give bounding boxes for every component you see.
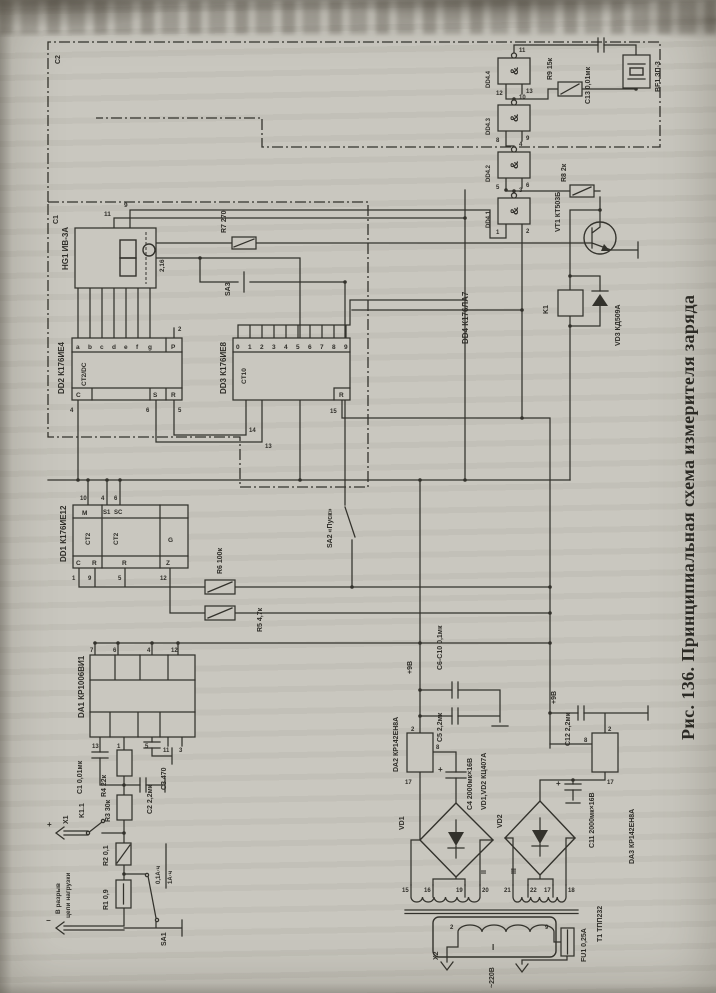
winding-ii-label: II: [481, 870, 488, 874]
dd3-out-4: 4: [284, 344, 288, 351]
junction-dots: [76, 87, 638, 876]
dd1-pin-5: 5: [118, 576, 122, 582]
nand-symbol: &: [509, 67, 521, 75]
da1-pin-6: 6: [113, 648, 117, 654]
dd2-counter: DD2 К176ИЕ4 CT2/DC a b c d e f g P 2 C S…: [57, 327, 182, 414]
dd3-label: DD3 К176ИЕ8: [219, 341, 228, 394]
t1-pin-20: 20: [482, 888, 489, 894]
da1-pin-4: 4: [147, 648, 151, 654]
da1-pin-7: 7: [90, 648, 94, 654]
c1-label: C1 0,01мк: [77, 760, 84, 794]
dd4-1-in1: 1: [496, 230, 500, 236]
nand-symbol: &: [509, 207, 521, 215]
dd3-out-5: 5: [296, 344, 300, 351]
dd4-4-in2: 13: [526, 89, 533, 95]
vd3-label: VD3 КД509А: [615, 304, 622, 346]
dd2-pin-6: 6: [146, 408, 150, 414]
sa2-label: SA2 «Пуск»: [327, 508, 334, 548]
x1-label: X1: [63, 815, 70, 824]
hg1-label: HG1 ИВ-3А: [61, 227, 70, 270]
vd2-bridge-label: VD2: [497, 814, 504, 828]
nand-symbol: &: [509, 161, 521, 169]
dd2-out-b: b: [88, 344, 92, 351]
range-1ah: 1А·ч: [168, 870, 174, 884]
da1-timer: DA1 КР1006ВИ1 7 6 4 12 13 1 5 11 3 C1 0,…: [77, 648, 195, 797]
c11-label: C11 2000мк×16В: [589, 792, 596, 848]
dd1-pin-12: 12: [160, 576, 167, 582]
dd3-r: R: [339, 392, 344, 399]
schematic-figure: C2 C1: [0, 0, 716, 993]
dd3-out-2: 2: [260, 344, 264, 351]
r7-label: R7 270: [221, 210, 228, 233]
k1-label: K1: [543, 305, 550, 314]
c6-c10-label: C6-C10 0,1мк: [437, 625, 444, 670]
dd4-3-in1: 8: [496, 138, 500, 144]
mains-voltage-label: ~220В: [489, 967, 496, 988]
t1-pin-15: 15: [402, 888, 409, 894]
plus9v-a: +9В: [407, 661, 414, 674]
sa1-label: SA1: [161, 932, 168, 946]
primary-label: I: [492, 943, 494, 952]
hg1-pin-9: 9: [124, 202, 128, 209]
t1-pin-17: 17: [544, 888, 551, 894]
c3-label: C3 470: [161, 767, 168, 790]
hg1-display: HG1 ИВ-3А 11 9 2,16: [61, 202, 166, 288]
dd2-label: DD2 К176ИЕ4: [57, 341, 66, 394]
da1-pin-1: 1: [117, 744, 121, 750]
battery-section: C2 2,2мк R3 30к K1.1 X1 + − В разрыв цеп…: [46, 778, 174, 946]
da3-pin-17: 17: [607, 780, 614, 786]
dd1-pin-6: 6: [114, 496, 118, 502]
dd2-c: C: [76, 392, 81, 399]
dd4-3-in2: 9: [526, 136, 530, 142]
t1-pin-18: 18: [568, 888, 575, 894]
da2-pin-2: 2: [411, 727, 415, 733]
c12-label: C12 2,2мк: [565, 712, 572, 746]
t1-pin-16: 16: [424, 888, 431, 894]
r3-label: R3 30к: [105, 799, 112, 822]
da3-pin-8: 8: [584, 738, 588, 744]
da2-pin-8: 8: [436, 745, 440, 751]
transformer: 15 16 19 20 21 22 17 18 2 9 I Т1 ТПП232 …: [402, 888, 604, 988]
dd1-z: Z: [166, 560, 170, 567]
dd3-pin-13: 13: [265, 444, 272, 450]
dd2-out-d: d: [112, 344, 116, 351]
load-note-line2: цепи нагрузки: [65, 873, 72, 918]
dd2-out-e: e: [124, 344, 128, 351]
dd1-c: C: [76, 560, 81, 567]
gate-dd4-2-label: DD4.2: [486, 164, 492, 182]
vd1-bridge-label: VD1: [399, 816, 406, 830]
c5-label: C5 2,2мк: [437, 712, 444, 742]
da1-label: DA1 КР1006ВИ1: [77, 655, 86, 718]
sound-unit: R9 15к C13 0,01мк BF1 ЗП-3: [547, 38, 662, 104]
dd3-out-7: 7: [320, 344, 324, 351]
t1-label: Т1 ТПП232: [597, 906, 604, 942]
da1-pin-3: 3: [179, 748, 183, 754]
winding-iii-label: III: [511, 868, 518, 874]
r1-label: R1 0,9: [103, 889, 110, 910]
dd3-func: CT10: [241, 368, 248, 384]
da3-pin-2: 2: [608, 727, 612, 733]
dd2-func: CT2/DC: [81, 362, 88, 386]
da1-pin-5: 5: [145, 744, 149, 750]
rectifier-section: VD1 VD2 II III: [399, 801, 575, 877]
dd3-counter: DD3 К176ИЕ8 CT10 0 1 2 3 4 5 6 7 8 9 R 1…: [219, 338, 350, 450]
da1-pin-11: 11: [163, 748, 170, 754]
t1-pin-21: 21: [504, 888, 511, 894]
hg1-pin-11: 11: [104, 211, 111, 218]
dd1-m: M: [82, 510, 87, 517]
r6-label: R6 100к: [217, 547, 224, 574]
dd4-2-in1: 5: [496, 185, 500, 191]
frame-inner-label: C1: [53, 215, 60, 224]
c2-label: C2 2,2мк: [147, 784, 154, 814]
dd1-label: DD1 К176ИЕ12: [59, 505, 68, 562]
dd1-pin-9: 9: [88, 576, 92, 582]
c4-plus: +: [438, 765, 443, 774]
r4-label: R4 22к: [101, 774, 108, 797]
dd3-pin-14: 14: [249, 428, 256, 434]
dd1-s1: S1: [103, 510, 111, 516]
gate-dd4-3-label: DD4.3: [486, 117, 492, 135]
t1-pri-pin-2: 2: [450, 925, 454, 931]
da3-label: DA3 КР142ЕН8А: [629, 809, 636, 864]
range-0-1ah: 0,1А·ч: [156, 865, 162, 884]
dd4-3-out: 10: [519, 95, 526, 101]
vt1-label: VT1 КТ503Б: [555, 192, 562, 232]
dd1-pin-10: 10: [80, 496, 87, 502]
figure-caption: Рис. 136. Принципиальная схема измерител…: [678, 295, 698, 740]
dd2-out-a: a: [76, 344, 80, 351]
dd4-label: DD4 К176ЛА7: [461, 291, 470, 344]
dd2-r: R: [171, 392, 176, 399]
t1-pin-19: 19: [456, 888, 463, 894]
dd2-s: S: [153, 392, 158, 399]
c13-label: C13 0,01мк: [585, 66, 592, 104]
dd4-4-out: 11: [519, 48, 526, 54]
t1-pin-22: 22: [530, 888, 537, 894]
timing-parts: R7 270 SA3 SA2 «Пуск» R6 100к R5 4,7к: [205, 210, 334, 632]
dd3-out-1: 1: [248, 344, 252, 351]
x2-label: X2: [433, 951, 440, 960]
r5-label: R5 4,7к: [257, 607, 264, 632]
r8-label: R8 2к: [561, 163, 568, 182]
da2-pin-17: 17: [405, 780, 412, 786]
dd1-ct2-b: CT2: [113, 532, 120, 545]
load-note-line1: В разрыв: [55, 883, 62, 914]
gate-dd4-1-label: DD4.1: [486, 210, 492, 228]
plus9v-b: +9В: [551, 691, 558, 704]
dd2-pin-2: 2: [178, 327, 182, 333]
dd2-pin-5: 5: [178, 408, 182, 414]
dd3-out-6: 6: [308, 344, 312, 351]
nand-symbol: &: [509, 114, 521, 122]
dd3-out-9: 9: [344, 344, 348, 351]
c11-plus: +: [556, 779, 561, 788]
vd1-vd2-label: VD1,VD2 КЦ407А: [481, 753, 488, 810]
dd3-out-3: 3: [272, 344, 276, 351]
frame-outer-label: C2: [55, 55, 62, 64]
dd3-out-0: 0: [236, 344, 240, 351]
dd1-r-a: R: [92, 560, 97, 567]
dd1-g: G: [168, 537, 173, 544]
dd1-r-b: R: [122, 560, 127, 567]
dd1-pin-4: 4: [101, 496, 105, 502]
gate-dd4-4-label: DD4.4: [486, 70, 492, 88]
dd4-1-in2: 2: [526, 229, 530, 235]
bf1-label: BF1 ЗП-3: [655, 61, 662, 92]
r9-label: R9 15к: [547, 57, 554, 80]
dd2-out-g: g: [148, 344, 152, 351]
hg1-pin-2-16: 2,16: [159, 259, 166, 272]
sa3-label: SA3: [225, 282, 232, 296]
da1-pin-13: 13: [92, 744, 99, 750]
x1-minus: −: [46, 916, 51, 925]
dd2-out-c: c: [100, 344, 104, 351]
dd3-out-8: 8: [332, 344, 336, 351]
dd2-p: P: [171, 344, 176, 351]
dd2-pin-4: 4: [70, 408, 74, 414]
dd1-pin-1: 1: [72, 576, 76, 582]
dd1-sc: SC: [114, 510, 123, 516]
x1-plus: +: [47, 820, 52, 829]
dd1-ct2-a: CT2: [85, 532, 92, 545]
dd4-2-in2: 6: [526, 183, 530, 189]
fu1-label: FU1 0,25А: [581, 928, 588, 962]
r2-label: R2 0,1: [103, 845, 110, 866]
da1-pin-12: 12: [171, 648, 178, 654]
dd3-pin-15: 15: [330, 409, 337, 415]
k1-1-label: K1.1: [79, 803, 86, 818]
dd1-counter: DD1 К176ИЕ12 CT2 CT2 M S1 SC G C R R Z 1…: [59, 496, 188, 582]
dd4-4-in1: 12: [496, 91, 503, 97]
c4-label: C4 2000мк×16В: [467, 758, 474, 810]
da2-label: DA2 КР142ЕН8А: [393, 717, 400, 772]
